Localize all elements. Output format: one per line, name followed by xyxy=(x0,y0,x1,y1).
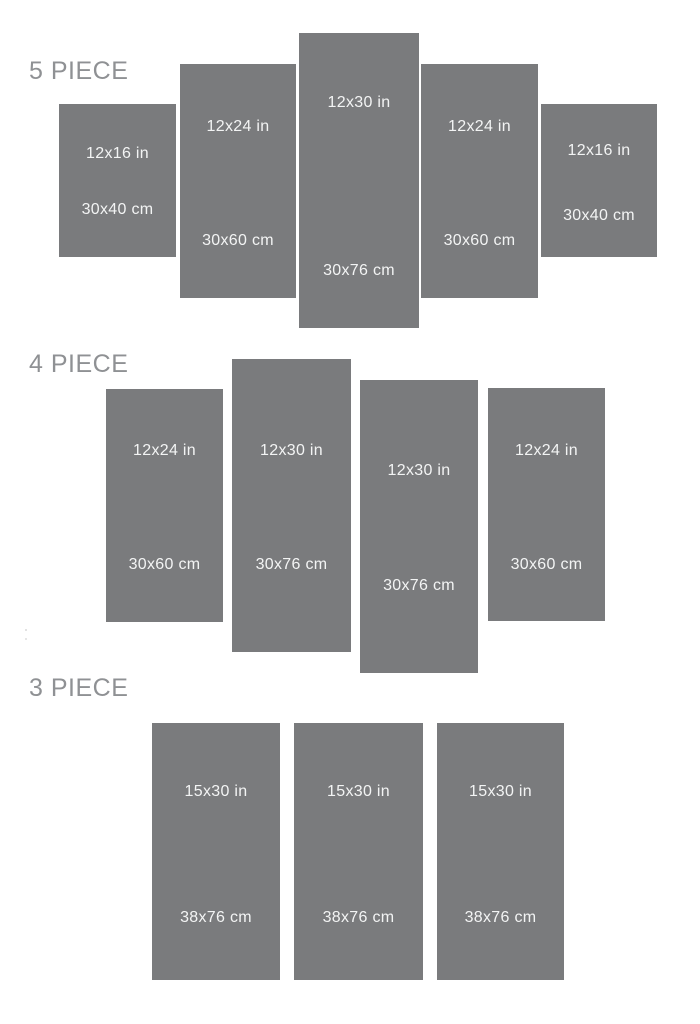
panel-3piece-3: 15x30 in 38x76 cm xyxy=(437,723,564,980)
stray-mark-artifact xyxy=(25,629,27,631)
section-label-3-piece: 3 PIECE xyxy=(29,676,128,701)
size-label-inches: 12x24 in xyxy=(133,442,196,460)
size-label-cm: 30x76 cm xyxy=(323,262,395,280)
panel-5piece-2: 12x24 in 30x60 cm xyxy=(180,64,296,298)
size-label-cm: 30x76 cm xyxy=(383,577,455,595)
size-label-cm: 38x76 cm xyxy=(465,909,537,927)
panel-4piece-3: 12x30 in 30x76 cm xyxy=(360,380,478,673)
canvas-size-chart: 5 PIECE 12x16 in 30x40 cm 12x24 in 30x60… xyxy=(0,0,700,1024)
size-label-cm: 30x40 cm xyxy=(563,207,635,225)
size-label-inches: 12x24 in xyxy=(515,442,578,460)
size-label-cm: 30x40 cm xyxy=(82,201,154,219)
panel-3piece-1: 15x30 in 38x76 cm xyxy=(152,723,280,980)
size-label-inches: 12x16 in xyxy=(568,142,631,160)
size-label-inches: 12x16 in xyxy=(86,145,149,163)
size-label-inches: 15x30 in xyxy=(327,783,390,801)
panel-5piece-3: 12x30 in 30x76 cm xyxy=(299,33,419,328)
panel-4piece-2: 12x30 in 30x76 cm xyxy=(232,359,351,652)
size-label-inches: 12x24 in xyxy=(207,118,270,136)
section-label-5-piece: 5 PIECE xyxy=(29,59,128,84)
size-label-inches: 15x30 in xyxy=(469,783,532,801)
panel-5piece-5: 12x16 in 30x40 cm xyxy=(541,104,657,257)
panel-5piece-1: 12x16 in 30x40 cm xyxy=(59,104,176,257)
size-label-inches: 12x30 in xyxy=(328,94,391,112)
size-label-inches: 12x30 in xyxy=(260,442,323,460)
size-label-cm: 30x60 cm xyxy=(202,232,274,250)
panel-4piece-1: 12x24 in 30x60 cm xyxy=(106,389,223,622)
size-label-cm: 30x76 cm xyxy=(256,556,328,574)
size-label-inches: 15x30 in xyxy=(185,783,248,801)
size-label-inches: 12x30 in xyxy=(388,462,451,480)
size-label-cm: 38x76 cm xyxy=(180,909,252,927)
section-label-4-piece: 4 PIECE xyxy=(29,352,128,377)
size-label-cm: 38x76 cm xyxy=(323,909,395,927)
panel-5piece-4: 12x24 in 30x60 cm xyxy=(421,64,538,298)
size-label-cm: 30x60 cm xyxy=(444,232,516,250)
panel-4piece-4: 12x24 in 30x60 cm xyxy=(488,388,605,621)
size-label-inches: 12x24 in xyxy=(448,118,511,136)
panel-3piece-2: 15x30 in 38x76 cm xyxy=(294,723,423,980)
size-label-cm: 30x60 cm xyxy=(511,556,583,574)
size-label-cm: 30x60 cm xyxy=(129,556,201,574)
